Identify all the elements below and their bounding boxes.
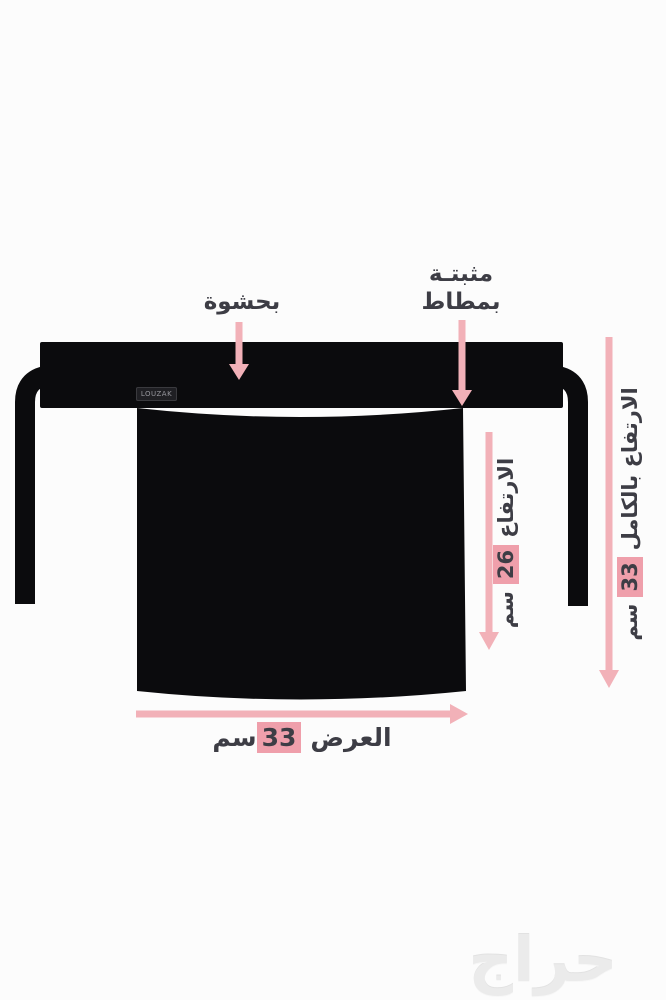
product-illustration bbox=[0, 0, 666, 1000]
elastic-label-line2: بمطاط bbox=[408, 288, 514, 316]
full-height-value-badge: 33 bbox=[617, 557, 643, 596]
haraj-watermark-logo: حراج bbox=[420, 922, 666, 998]
right-strap bbox=[551, 375, 578, 606]
left-strap bbox=[25, 375, 52, 604]
height-label-text: الارتفاع bbox=[494, 458, 518, 538]
main-panel bbox=[137, 408, 466, 700]
width-label: العرض 33 سم bbox=[192, 722, 412, 753]
full-height-label: الارتفاع بالكامل 33 سم bbox=[615, 409, 645, 619]
brand-label: LOUZAK bbox=[136, 387, 177, 401]
top-bar bbox=[40, 342, 563, 408]
width-label-text: العرض bbox=[310, 723, 391, 752]
padding-label: بحشوة bbox=[187, 288, 297, 316]
height-label: الارتفاع 26 سم bbox=[491, 468, 521, 618]
product-diagram: LOUZAK بحشوة مثبتـة بمطاط الارتفاع 26 سم… bbox=[0, 0, 666, 1000]
width-value-badge: 33 bbox=[257, 722, 302, 753]
height-value-badge: 26 bbox=[493, 545, 519, 584]
full-height-label-text: الارتفاع بالكامل bbox=[618, 387, 642, 550]
elastic-label-line1: مثبتـة bbox=[408, 260, 514, 288]
width-unit: سم bbox=[212, 723, 256, 752]
width-arrow bbox=[136, 704, 468, 724]
elastic-label: مثبتـة بمطاط bbox=[408, 260, 514, 316]
full-height-unit: سم bbox=[618, 604, 642, 641]
height-unit: سم bbox=[494, 591, 518, 628]
